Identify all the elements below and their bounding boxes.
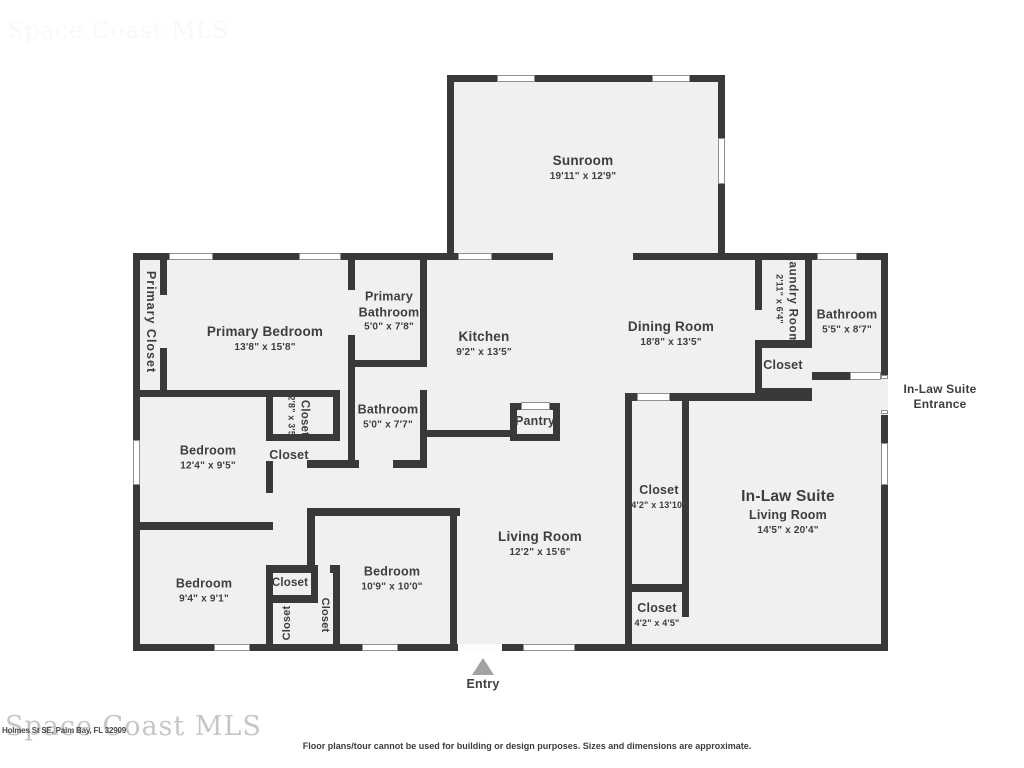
room-label-closet-mid: Closet: [269, 448, 308, 464]
window: [497, 75, 535, 82]
window: [718, 138, 725, 184]
room-label-primary-bathroom: Primary Bathroom 5'0" x 7'8": [356, 290, 422, 335]
floor-plan: Sunroom 19'11" x 12'9" Primary Closet Pr…: [0, 0, 1024, 768]
window: [458, 253, 492, 260]
room-label-closet-h: Closet: [272, 576, 308, 590]
room-label-bedroom-109: Bedroom 10'9" x 10'0": [361, 564, 422, 593]
room-label-closet-v1: Closet: [281, 606, 295, 641]
room-label-living-room: Living Room 12'2" x 15'6": [498, 529, 582, 559]
label-inlaw-entrance: In-Law Suite Entrance: [893, 382, 987, 412]
window: [299, 253, 341, 260]
opening-casing: [881, 410, 888, 414]
window: [362, 644, 398, 651]
room-label-pantry: Pantry: [515, 414, 555, 430]
room-label-closet-v2: Closet: [317, 598, 331, 633]
room-label-closet-28: Closet 2'8" x 3'5": [285, 395, 312, 440]
window: [133, 440, 140, 485]
room-label-primary-closet: Primary Closet: [142, 271, 158, 373]
room-label-bathroom-mid: Bathroom 5'0" x 7'7": [358, 402, 419, 431]
room-label-bedroom-124: Bedroom 12'4" x 9'5": [180, 443, 236, 472]
window: [169, 253, 213, 260]
room-label-closet-laundry: Closet: [763, 358, 802, 374]
window: [652, 75, 690, 82]
room-label-bedroom-94: Bedroom 9'4" x 9'1": [176, 576, 232, 605]
entry-arrow-icon: [472, 658, 494, 675]
room-label-primary-bedroom: Primary Bedroom 13'8" x 15'8": [207, 324, 323, 354]
opening-casing: [637, 393, 670, 401]
room-label-bathroom-right: Bathroom 5'5" x 8'7": [817, 307, 878, 336]
room-label-closet-42: Closet 4'2" x 4'5": [634, 601, 679, 629]
room-label-dining-room: Dining Room 18'8" x 13'5": [628, 319, 714, 349]
room-label-kitchen: Kitchen 9'2" x 13'5": [456, 329, 512, 359]
opening-casing: [881, 375, 888, 379]
entry-label: Entry: [467, 677, 500, 693]
opening-casing: [521, 402, 550, 410]
window: [214, 644, 250, 651]
disclaimer-text: Floor plans/tour cannot be used for buil…: [0, 741, 1024, 751]
window: [881, 443, 888, 485]
room-label-inlaw-living: In-Law Suite Living Room 14'5" x 20'4": [741, 487, 835, 538]
watermark-top: Space Coast MLS: [8, 18, 229, 44]
room-label-closet-tall: Closet 4'2" x 13'10": [631, 483, 686, 511]
window: [523, 644, 575, 651]
window: [817, 253, 857, 260]
room-label-sunroom: Sunroom 19'11" x 12'9": [550, 153, 617, 183]
opening-casing: [850, 372, 881, 380]
room-label-laundry-room: Laundry Room 2'11" x 6'4": [773, 254, 800, 345]
property-address: Holmes St SE, Palm Bay, FL 32909: [2, 726, 126, 735]
